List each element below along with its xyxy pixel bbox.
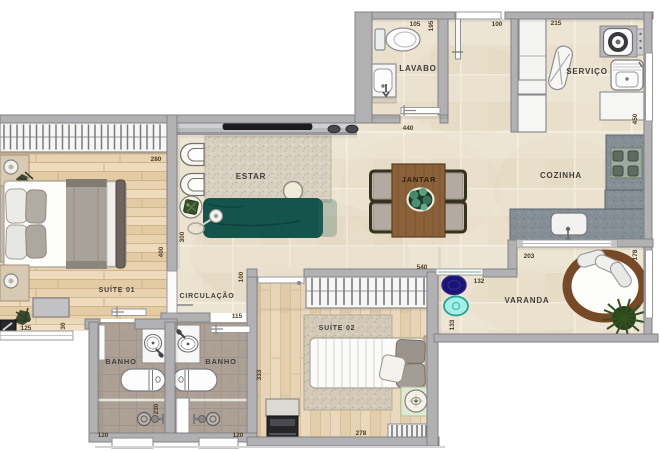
svg-text:450: 450 <box>632 113 639 124</box>
svg-text:ESTAR: ESTAR <box>236 172 267 181</box>
svg-text:400: 400 <box>158 246 165 257</box>
svg-text:280: 280 <box>151 156 162 163</box>
svg-text:105: 105 <box>410 21 421 28</box>
svg-text:300: 300 <box>179 231 186 242</box>
svg-text:LAVABO: LAVABO <box>399 64 436 73</box>
svg-text:540: 540 <box>417 264 428 271</box>
svg-text:230: 230 <box>153 403 160 414</box>
svg-text:178: 178 <box>632 249 639 260</box>
svg-text:BANHO: BANHO <box>205 357 237 366</box>
svg-text:SUÍTE 02: SUÍTE 02 <box>319 323 356 332</box>
svg-text:115: 115 <box>232 313 243 320</box>
svg-text:195: 195 <box>428 20 435 31</box>
svg-text:30: 30 <box>60 322 67 330</box>
svg-text:125: 125 <box>21 325 32 332</box>
svg-text:333: 333 <box>256 369 263 380</box>
svg-text:SUÍTE 01: SUÍTE 01 <box>99 285 136 294</box>
svg-text:SERVIÇO: SERVIÇO <box>566 67 607 76</box>
svg-text:COZINHA: COZINHA <box>540 171 582 180</box>
svg-text:215: 215 <box>551 20 562 27</box>
svg-text:132: 132 <box>474 278 485 285</box>
svg-text:203: 203 <box>524 253 535 260</box>
svg-text:120: 120 <box>98 432 109 439</box>
svg-text:JANTAR: JANTAR <box>402 175 437 184</box>
svg-text:VARANDA: VARANDA <box>504 296 549 305</box>
svg-text:440: 440 <box>403 125 414 132</box>
svg-text:100: 100 <box>238 271 245 282</box>
svg-text:100: 100 <box>492 21 503 28</box>
svg-text:120: 120 <box>233 432 244 439</box>
svg-text:278: 278 <box>356 430 367 437</box>
svg-text:CIRCULAÇÃO: CIRCULAÇÃO <box>179 291 234 300</box>
svg-text:BANHO: BANHO <box>105 357 137 366</box>
svg-text:133: 133 <box>449 319 456 330</box>
